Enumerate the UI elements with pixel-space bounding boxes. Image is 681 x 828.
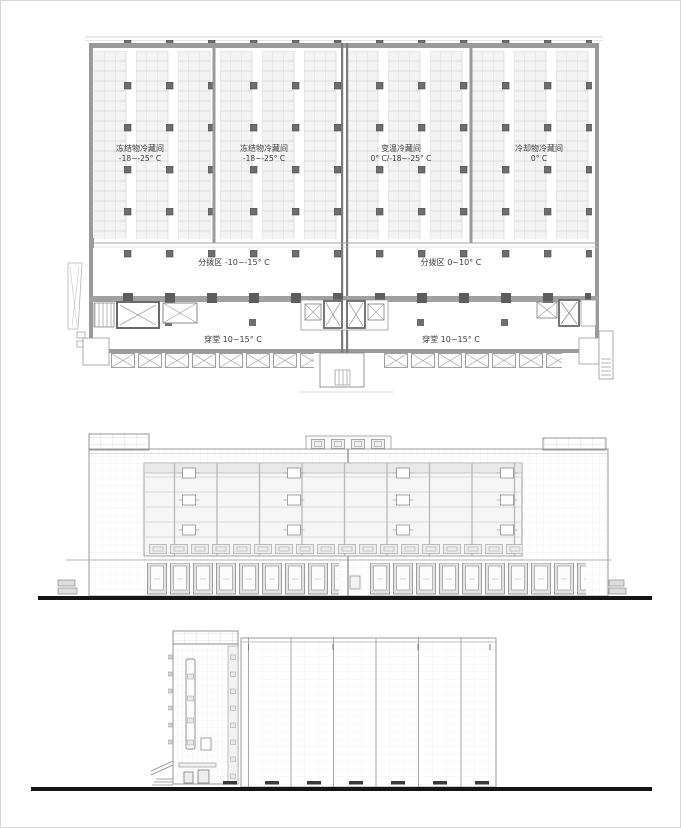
wall-step	[89, 238, 94, 248]
entrance-door-2	[198, 770, 209, 783]
room-4-temp: 0° C	[531, 154, 547, 163]
side-elevation	[31, 631, 652, 791]
drawing-sheet: 冻结物冷藏间 -18~-25° C 冻结物冷藏间 -18~-25° C 变温冷藏…	[0, 0, 681, 828]
louver-row	[149, 544, 522, 555]
wall-top	[89, 43, 599, 48]
sorting-zone-left-label: 分拨区 -10~-15° C	[198, 257, 270, 267]
dock-levelers-right	[384, 353, 562, 369]
tower-left-ticks	[168, 649, 173, 754]
corridor-left-label: 穿堂 10~15° C	[204, 334, 262, 344]
drawing-canvas: 冻结物冷藏间 -18~-25° C 冻结物冷藏间 -18~-25° C 变温冷藏…	[1, 1, 681, 828]
tower-small-window	[201, 738, 211, 750]
dock-levelers-left	[111, 353, 314, 369]
left-ramp	[68, 263, 82, 329]
wall-room-divider-2	[470, 43, 473, 243]
tower-parapet	[173, 631, 238, 644]
tower-right-strip-marks	[228, 649, 238, 781]
stair-tower-left	[89, 434, 149, 450]
room-2-name: 冻结物冷藏间	[240, 143, 288, 153]
room-1-temp: -18~-25° C	[119, 154, 161, 163]
room-2-temp: -18~-25° C	[243, 154, 285, 163]
right-ground-block-2	[609, 588, 626, 594]
room-3-temp: 0° C/-18~-25° C	[371, 154, 432, 163]
side-body	[241, 638, 496, 787]
room-3-name: 变温冷藏间	[381, 143, 421, 153]
side-tower	[151, 631, 238, 785]
room-1-name: 冻结物冷藏间	[116, 143, 164, 153]
entrance-door-1	[184, 772, 193, 783]
left-room	[83, 338, 109, 365]
right-ground-block-1	[609, 580, 624, 586]
vestibule-stair	[335, 370, 350, 385]
floor-plan: 冻结物冷藏间 -18~-25° C 冻结物冷藏间 -18~-25° C 变温冷藏…	[68, 37, 613, 392]
rooftop-unit-4	[372, 440, 385, 449]
rooftop-unit-2	[332, 440, 345, 449]
left-ground-block-1	[58, 580, 75, 586]
ground-vents	[223, 781, 495, 786]
wall-left	[89, 43, 93, 349]
wall-room-divider-1	[213, 43, 216, 243]
wall-bottom	[89, 349, 599, 353]
panel-area	[144, 463, 522, 556]
dock-shelters-right	[369, 563, 586, 596]
center-dock-stair	[350, 576, 360, 589]
stair-left	[94, 303, 114, 327]
left-ancillary-1	[77, 332, 85, 338]
ground-line-side	[31, 787, 652, 791]
rooftop-unit-1	[312, 440, 325, 449]
right-stair-treads	[601, 357, 611, 377]
center-core	[301, 300, 388, 330]
stair-tower-right	[543, 438, 606, 450]
entrance-canopy	[179, 763, 216, 767]
corridor-right-label: 穿堂 10~15° C	[422, 334, 480, 344]
dock-shelters-left	[146, 563, 339, 596]
ground-line-front	[38, 596, 652, 600]
tower-window-strip	[186, 659, 195, 749]
front-elevation	[38, 434, 652, 600]
entry-steps	[151, 761, 173, 785]
left-ground-block-2	[58, 588, 77, 594]
sorting-zone-right-label: 分拨区 0~10° C	[421, 257, 482, 267]
rooftop-unit-3	[352, 440, 365, 449]
room-4-name: 冷却物冷藏间	[515, 143, 563, 153]
